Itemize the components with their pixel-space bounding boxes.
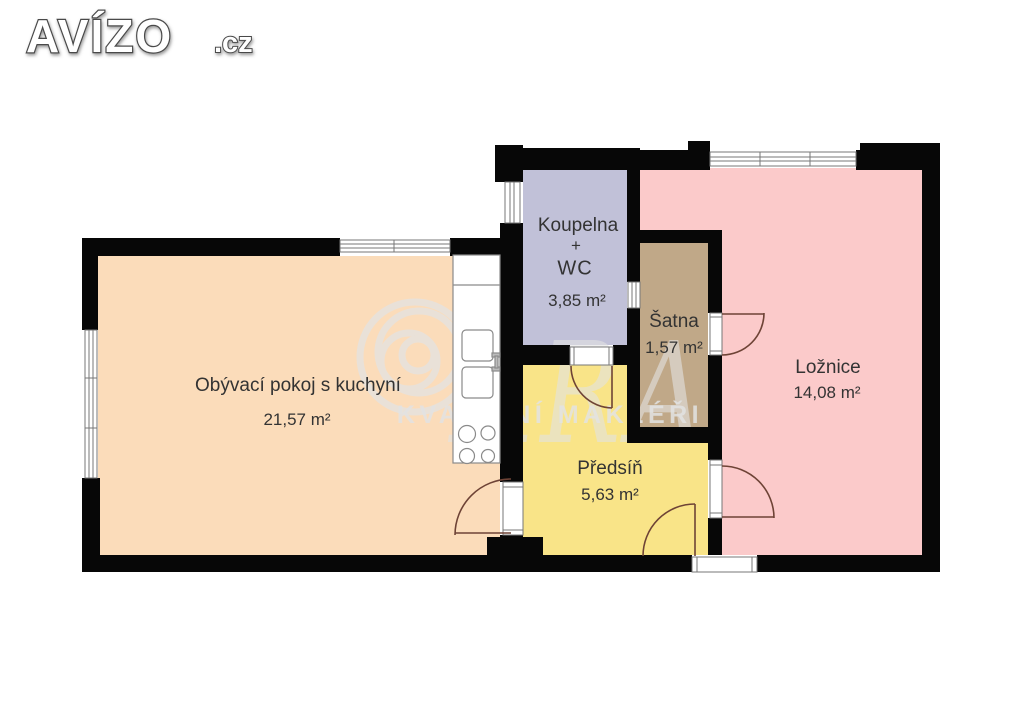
label-living-room-area: 21,57 m²	[263, 410, 330, 430]
window-living-top	[340, 240, 450, 252]
window-closet-vent	[628, 282, 640, 308]
door-frame-hallway-bedroom	[710, 460, 722, 518]
label-living-room-name: Obývací pokoj s kuchyní	[195, 375, 401, 397]
logo-text: AVÍZO	[26, 10, 173, 62]
label-bathroom-wc: WC	[557, 258, 592, 281]
room-bedroom	[640, 168, 922, 230]
label-bedroom-name: Ložnice	[795, 357, 861, 379]
label-closet-name: Šatna	[649, 311, 699, 333]
avizo-logo: AVÍZO .cz	[22, 6, 282, 70]
label-bedroom-area: 14,08 m²	[793, 383, 860, 403]
label-hallway-name: Předsíň	[577, 458, 642, 480]
label-bathroom-plus: +	[571, 236, 581, 256]
label-closet-area: 1,57 m²	[645, 338, 703, 358]
kitchen-counter	[453, 255, 500, 464]
door-frame-living-hallway	[503, 482, 523, 535]
door-frame-entrance	[692, 557, 757, 572]
label-bathroom-area: 3,85 m²	[548, 291, 606, 311]
label-bathroom-name: Koupelna	[538, 215, 618, 237]
floorplan-drawing: ARA KVALITNÍ MAKLÉŘI	[0, 0, 1024, 724]
door-frame-closet-bedroom	[710, 313, 722, 355]
label-hallway-area: 5,63 m²	[581, 485, 639, 505]
logo-suffix: .cz	[214, 27, 253, 59]
window-bedroom-top	[710, 152, 856, 166]
window-living-left	[85, 330, 97, 478]
door-frame-bathroom	[570, 347, 613, 365]
window-bathroom	[505, 182, 520, 223]
floorplan-image: ARA KVALITNÍ MAKLÉŘI	[0, 0, 1024, 724]
watermark-tagline: KVALITNÍ MAKLÉŘI	[397, 399, 703, 429]
